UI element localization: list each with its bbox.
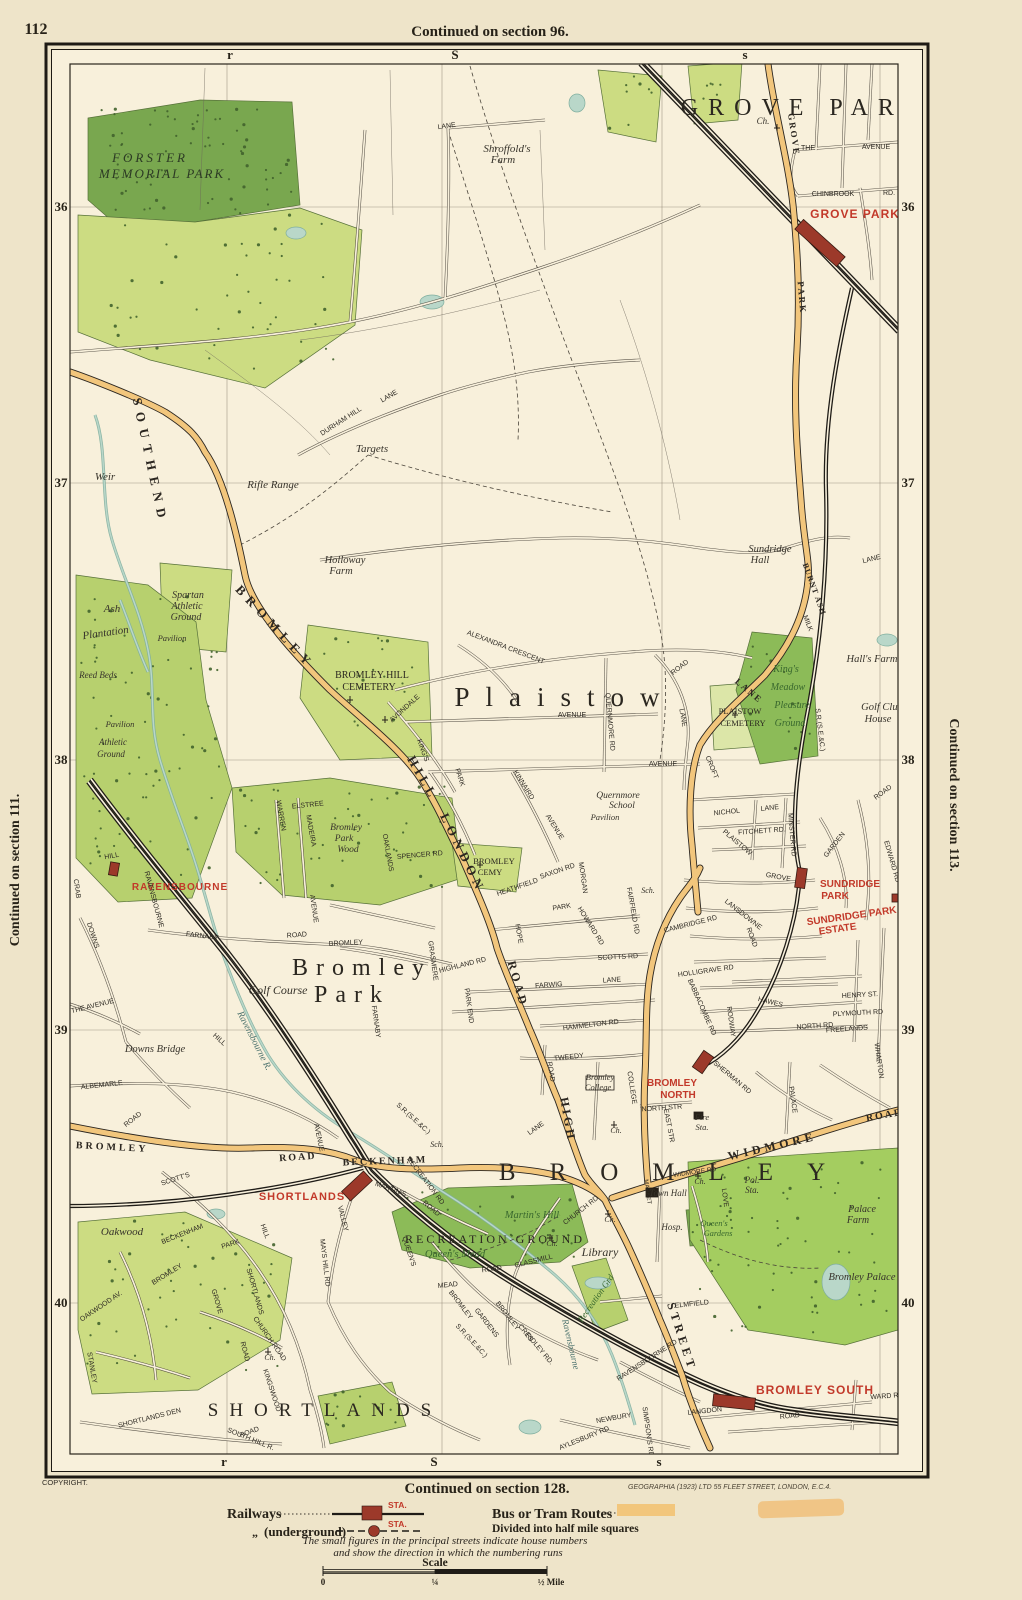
map-label: BROMLEY SOUTH (756, 1383, 874, 1397)
grid-number-left: 37 (55, 475, 69, 490)
tree-icon (874, 1290, 876, 1292)
tree-icon (224, 1288, 226, 1290)
tree-icon (174, 118, 176, 120)
map-label: Oakwood (101, 1226, 144, 1238)
map-label: Ch. (757, 116, 770, 126)
tree-icon (122, 1278, 124, 1280)
tree-icon (142, 796, 144, 798)
tree-icon (259, 882, 261, 884)
map-label: Sta. (696, 1122, 709, 1132)
map-label: Golf Club (861, 702, 903, 713)
tree-icon (248, 1264, 250, 1266)
tree-icon (719, 1205, 721, 1207)
tree-icon (386, 797, 388, 799)
tree-icon (214, 737, 217, 740)
tree-icon (730, 1207, 732, 1209)
tree-icon (395, 850, 397, 852)
tree-icon (809, 733, 811, 735)
tree-icon (162, 206, 165, 209)
tree-icon (878, 1197, 880, 1199)
tree-icon (113, 845, 115, 847)
tree-icon (377, 637, 379, 639)
tree-icon (92, 797, 94, 799)
tree-icon (269, 323, 271, 325)
pond (519, 1420, 541, 1434)
tree-icon (266, 188, 268, 190)
tree-icon (287, 159, 290, 162)
tree-icon (126, 817, 129, 820)
tree-icon (101, 109, 103, 111)
map-label: Meadow (770, 682, 806, 693)
pond (286, 227, 306, 239)
tree-icon (133, 1219, 136, 1222)
tree-icon (94, 598, 96, 600)
tree-icon (334, 637, 337, 640)
map-label: RECREATION GROUND (405, 1232, 585, 1246)
map-label: NORTH (660, 1090, 696, 1101)
imprint: GEOGRAPHIA (1923) LTD 55 FLEET STREET, L… (628, 1484, 831, 1491)
tree-icon (197, 114, 199, 116)
tree-icon (182, 1222, 184, 1224)
tree-icon (89, 862, 91, 864)
tree-icon (234, 208, 236, 210)
map-canvas: GROVE PARKPlaistowBromleyParkBROMLEYSHOR… (0, 0, 1022, 1600)
tree-icon (711, 1270, 713, 1272)
bus-route-swatch (617, 1504, 675, 1516)
tree-icon (811, 1296, 813, 1298)
grid-number-left: 39 (55, 1022, 69, 1037)
tree-icon (115, 209, 117, 211)
tree-icon (730, 1219, 732, 1221)
page-number: 112 (24, 21, 47, 38)
tree-icon (265, 871, 267, 873)
tree-icon (247, 291, 249, 293)
tree-icon (166, 110, 168, 112)
tree-icon (187, 848, 189, 850)
scale-label: Scale (422, 1557, 448, 1569)
tree-icon (814, 1304, 817, 1307)
grid-number-left: 36 (55, 199, 69, 214)
tree-icon (341, 1390, 344, 1393)
tree-icon (766, 653, 768, 655)
tree-icon (116, 307, 118, 309)
map-label: Reed Beds (78, 670, 117, 680)
tree-icon (347, 808, 349, 810)
tree-icon (95, 837, 97, 839)
tree-icon (811, 1311, 813, 1313)
tree-icon (125, 190, 127, 192)
tree-icon (275, 316, 277, 318)
map-label: Queen's (700, 1218, 728, 1228)
map-label: Quernmore (596, 791, 639, 801)
continued-bottom: Continued on section 128. (404, 1481, 569, 1497)
map-label: Ch. (610, 1126, 621, 1135)
map-label: Queen's Mead (425, 1249, 486, 1260)
tree-icon (120, 192, 123, 195)
map-label: College (585, 1082, 612, 1092)
tree-icon (190, 667, 192, 669)
tree-icon (860, 1161, 863, 1164)
grid-number-right: 38 (902, 752, 916, 767)
tree-icon (149, 207, 151, 209)
tree-icon (395, 791, 398, 794)
tree-icon (224, 243, 227, 246)
tree-icon (348, 792, 350, 794)
tree-icon (423, 804, 425, 806)
tree-icon (267, 328, 269, 330)
grid-number-right: 37 (902, 475, 916, 490)
tree-icon (201, 747, 203, 749)
tree-icon (161, 1233, 163, 1235)
map-label: Bromley (292, 955, 432, 981)
tree-icon (296, 832, 298, 834)
tree-icon (245, 1369, 247, 1371)
tree-icon (786, 1198, 788, 1200)
tree-icon (94, 660, 96, 662)
tree-icon (441, 886, 443, 888)
tree-icon (838, 1251, 840, 1253)
tree-icon (147, 1308, 149, 1310)
tree-icon (139, 348, 141, 350)
map-label: Pleasure (773, 700, 810, 711)
bus-route-color-smudge (758, 1498, 845, 1518)
tree-icon (267, 1295, 270, 1298)
tree-icon (136, 181, 138, 183)
tree-icon (159, 598, 161, 600)
tree-icon (208, 866, 211, 869)
tree-icon (87, 610, 90, 613)
map-label: Fire (694, 1112, 710, 1122)
tree-icon (747, 1231, 749, 1233)
tree-icon (777, 1227, 779, 1229)
map-label: SHORTLANDS (259, 1191, 345, 1203)
underground-quote: „ (252, 1525, 258, 1539)
tree-icon (112, 134, 115, 137)
tree-icon (110, 304, 113, 307)
legend-sta-1: STA. (388, 1500, 407, 1510)
tree-icon (180, 874, 182, 876)
grid-letter-bottom: s (656, 1454, 661, 1469)
tree-icon (165, 1325, 167, 1327)
map-label: ROAD (287, 931, 308, 939)
map-label: Ch. (694, 1177, 705, 1186)
tree-icon (118, 833, 120, 835)
tree-icon (726, 1215, 728, 1217)
map-label: Sta. (745, 1185, 759, 1195)
tree-icon (354, 720, 356, 722)
map-label: House (864, 714, 892, 725)
continued-right: Continued on section 113. (946, 718, 961, 871)
tree-icon (216, 651, 218, 653)
tree-icon (322, 844, 324, 846)
tree-icon (114, 325, 117, 328)
tree-icon (323, 308, 326, 311)
tree-icon (254, 831, 257, 834)
map-label: Gardens (704, 1228, 734, 1238)
tree-icon (711, 83, 713, 85)
tree-icon (699, 1288, 701, 1290)
tree-icon (860, 1304, 862, 1306)
tree-icon (214, 118, 216, 120)
map-label: Ground (97, 749, 125, 759)
tree-icon (267, 203, 269, 205)
map-label: Pavilion (590, 812, 620, 822)
tree-icon (257, 243, 260, 246)
tree-icon (750, 666, 752, 668)
tree-icon (405, 822, 407, 824)
map-label: SHORTLANDS (208, 1400, 442, 1421)
map-label: Rifle Range (246, 479, 299, 491)
tree-icon (731, 1329, 733, 1331)
tree-icon (341, 860, 343, 862)
tree-icon (758, 1306, 761, 1309)
tree-icon (194, 1265, 197, 1268)
tree-icon (131, 672, 133, 674)
tree-icon (196, 120, 198, 122)
tree-icon (713, 1315, 716, 1318)
tree-icon (272, 1243, 275, 1246)
tree-icon (788, 1187, 791, 1190)
tree-icon (160, 281, 163, 284)
tree-icon (113, 113, 115, 115)
tree-icon (443, 786, 445, 788)
tree-icon (173, 1290, 175, 1292)
tree-icon (747, 1264, 749, 1266)
tree-icon (879, 1169, 881, 1171)
legend-bus-label: Bus or Tram Routes (492, 1507, 613, 1522)
tree-icon (239, 212, 241, 214)
tree-icon (276, 1365, 278, 1367)
tree-icon (158, 779, 160, 781)
map-label: Wood (337, 845, 359, 855)
station-marker (108, 862, 119, 876)
map-label: Sch. (641, 886, 655, 895)
tree-icon (357, 724, 359, 726)
tree-icon (270, 1273, 272, 1275)
map-label: GROVE PARK (810, 207, 900, 221)
tree-icon (403, 691, 405, 693)
tree-icon (276, 879, 278, 881)
tree-icon (96, 845, 98, 847)
tree-icon (159, 1296, 161, 1298)
map-label: MEMORIAL PARK (98, 166, 225, 181)
map-label: SUNDRIDGE (820, 879, 880, 890)
tree-icon (270, 1263, 272, 1265)
tree-icon (277, 790, 279, 792)
tree-icon (130, 317, 132, 319)
map-label: Hosp. (660, 1222, 682, 1232)
tree-icon (782, 1192, 784, 1194)
tree-icon (206, 109, 208, 111)
map-label: Farm (328, 566, 353, 577)
tree-icon (393, 848, 395, 850)
map-label: King's (772, 664, 799, 675)
tree-icon (97, 850, 100, 853)
tree-icon (263, 1282, 265, 1284)
tree-icon (147, 692, 150, 695)
tree-icon (710, 83, 712, 85)
tree-icon (93, 646, 95, 648)
tree-icon (741, 1325, 743, 1327)
tree-icon (325, 348, 327, 350)
tree-icon (239, 789, 242, 792)
tree-icon (246, 164, 249, 167)
tree-icon (128, 773, 130, 775)
tree-icon (207, 705, 209, 707)
tree-icon (359, 1395, 361, 1397)
tree-icon (240, 150, 242, 152)
tree-icon (208, 357, 210, 359)
tree-icon (692, 1231, 694, 1233)
tree-icon (290, 191, 292, 193)
tree-icon (211, 198, 213, 200)
tree-icon (812, 1331, 814, 1333)
tree-icon (820, 1186, 822, 1188)
tree-icon (128, 1252, 131, 1255)
tree-icon (183, 734, 185, 736)
tree-icon (207, 137, 209, 139)
legend-divided-note: Divided into half mile squares (492, 1523, 639, 1535)
legend-note-2: and show the direction in which the numb… (333, 1547, 562, 1559)
tree-icon (222, 143, 224, 145)
tree-icon (228, 178, 230, 180)
tree-icon (117, 334, 120, 337)
tree-icon (280, 172, 282, 174)
tree-icon (816, 1312, 818, 1314)
tree-icon (804, 1240, 806, 1242)
map-label: BROMLEY (647, 1078, 697, 1089)
map-label: Pavilion (157, 633, 187, 643)
tree-icon (411, 666, 413, 668)
map-label: Park (314, 982, 390, 1008)
tree-icon (650, 91, 652, 93)
grid-number-right: 40 (902, 1295, 915, 1310)
map-label: BROMLEY (473, 856, 515, 866)
tree-icon (402, 831, 404, 833)
legend-note-1: The small figures in the principal stree… (303, 1535, 588, 1547)
tree-icon (381, 640, 383, 642)
tree-icon (97, 1322, 100, 1325)
tree-icon (244, 825, 246, 827)
tree-icon (236, 130, 238, 132)
tree-icon (110, 715, 112, 717)
tree-icon (245, 138, 248, 141)
pond (877, 634, 897, 646)
tree-icon (152, 785, 154, 787)
map-label: Ch. (264, 1353, 275, 1362)
map-label: Park (334, 834, 354, 844)
tree-icon (92, 697, 94, 699)
station-symbol (362, 1506, 382, 1520)
tree-icon (794, 747, 797, 750)
map-label: Weir (95, 471, 116, 483)
tree-icon (511, 1195, 514, 1198)
map-label: Golf Course (248, 983, 308, 997)
tree-icon (175, 135, 177, 137)
map-label: PLAISTOW (719, 706, 762, 716)
tree-icon (149, 840, 151, 842)
tree-icon (155, 199, 158, 202)
tree-icon (150, 184, 152, 186)
scale-tick-quarter: ¼ (432, 1577, 439, 1587)
tree-icon (203, 749, 206, 752)
map-label: School (609, 801, 635, 811)
map-label: RD. (883, 190, 895, 197)
tree-icon (288, 214, 291, 217)
tree-icon (174, 255, 177, 258)
tree-icon (226, 294, 228, 296)
tree-icon (274, 227, 277, 230)
tree-icon (419, 875, 422, 878)
grid-letter-bottom: r (221, 1454, 227, 1469)
tree-icon (608, 127, 611, 130)
tree-icon (209, 1327, 211, 1329)
grid-number-left: 40 (55, 1295, 68, 1310)
tree-icon (381, 648, 383, 650)
tree-icon (318, 857, 320, 859)
tree-icon (314, 323, 316, 325)
tree-icon (730, 1197, 732, 1199)
tree-icon (285, 163, 288, 166)
tree-icon (706, 84, 708, 86)
tree-icon (241, 1284, 243, 1286)
tree-icon (253, 367, 255, 369)
tree-icon (181, 1239, 183, 1241)
tree-icon (99, 855, 101, 857)
tree-icon (265, 169, 267, 171)
tree-icon (848, 1251, 850, 1253)
tree-icon (93, 773, 95, 775)
tree-icon (175, 1318, 177, 1320)
tree-icon (218, 765, 220, 767)
tree-icon (648, 88, 650, 90)
tree-icon (166, 704, 168, 706)
tree-icon (744, 1326, 746, 1328)
tree-icon (210, 656, 212, 658)
tree-icon (347, 641, 349, 643)
tree-icon (114, 1268, 116, 1270)
tree-icon (230, 198, 233, 201)
map-label: Hall's Farm (846, 654, 898, 665)
tree-icon (196, 308, 198, 310)
continued-top: Continued on section 96. (411, 24, 569, 40)
tree-icon (109, 145, 111, 147)
map-label: Ch. (604, 1215, 615, 1224)
tree-icon (211, 651, 213, 653)
tree-icon (234, 1252, 237, 1255)
tree-icon (310, 858, 312, 860)
tree-icon (300, 341, 302, 343)
map-label: THE (801, 145, 815, 152)
map-label: CEMETERY (720, 718, 765, 728)
tree-icon (236, 274, 238, 276)
map-sheet: GROVE PARKPlaistowBromleyParkBROMLEYSHOR… (0, 0, 1022, 1600)
tree-icon (717, 1264, 719, 1266)
tree-icon (709, 1259, 711, 1261)
tree-icon (625, 84, 627, 86)
tree-icon (299, 360, 302, 363)
tree-icon (191, 123, 193, 125)
tree-icon (704, 1256, 706, 1258)
tree-icon (145, 773, 147, 775)
tree-icon (241, 243, 243, 245)
tree-icon (871, 1233, 873, 1235)
map-label: Pol. (744, 1175, 760, 1185)
tree-icon (115, 779, 118, 782)
tree-icon (242, 123, 245, 126)
tree-icon (252, 326, 254, 328)
tree-icon (729, 1210, 732, 1213)
